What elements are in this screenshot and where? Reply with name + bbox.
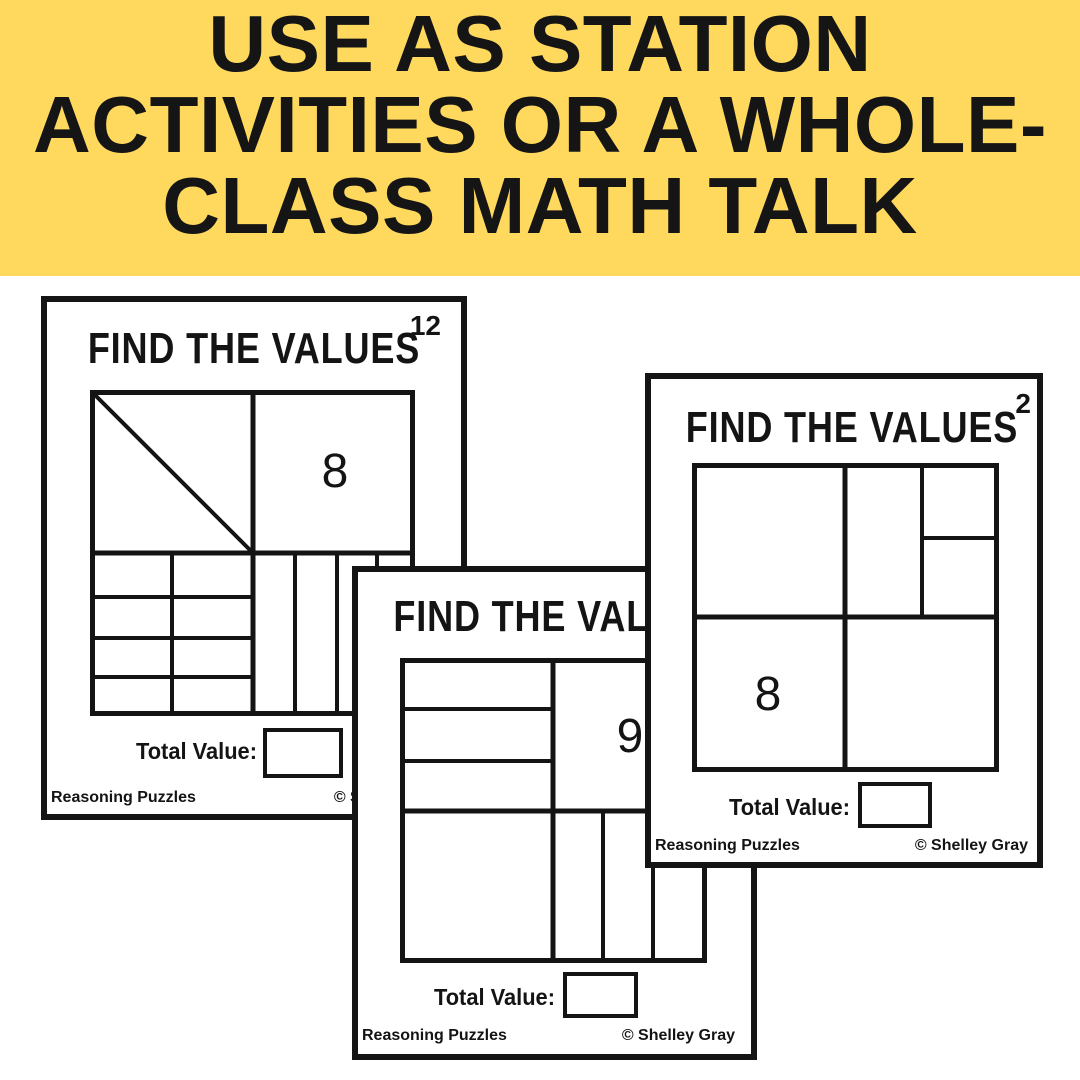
brand-label: Reasoning Puzzles (51, 789, 196, 807)
card-title: FIND THE VALUES (84, 324, 423, 374)
banner: USE AS STATION ACTIVITIES OR A WHOLE- CL… (0, 0, 1080, 276)
total-value-label: Total Value: (58, 738, 258, 765)
total-value-box (563, 972, 638, 1018)
copyright-label: © Shelley Gray (915, 837, 1028, 855)
worksheet-card-right: FIND THE VALUES 2 8 Total Value: Reasoni… (645, 373, 1043, 868)
puzzle-number: 2 (1015, 388, 1031, 420)
brand-label: Reasoning Puzzles (655, 837, 800, 855)
total-value-label: Total Value: (368, 984, 555, 1011)
brand-label: Reasoning Puzzles (362, 1027, 507, 1045)
banner-line-3: CLASS MATH TALK (0, 165, 1080, 246)
total-value-box (858, 782, 932, 828)
banner-line-2: ACTIVITIES OR A WHOLE- (0, 84, 1080, 165)
puzzle-grid: 8 (692, 463, 999, 772)
total-value-label: Total Value: (661, 794, 850, 821)
copyright-label: © Shelley Gray (622, 1027, 735, 1045)
puzzle-cell-value: 8 (322, 445, 349, 498)
total-value-box (263, 728, 343, 778)
puzzle-cell-value: 8 (755, 668, 782, 721)
puzzle-number: 12 (410, 310, 441, 342)
promo-graphic: USE AS STATION ACTIVITIES OR A WHOLE- CL… (0, 0, 1080, 1080)
puzzle-cell-value: 9 (617, 710, 644, 763)
card-title: FIND THE VALUES (686, 403, 1003, 453)
banner-line-1: USE AS STATION (0, 3, 1080, 84)
